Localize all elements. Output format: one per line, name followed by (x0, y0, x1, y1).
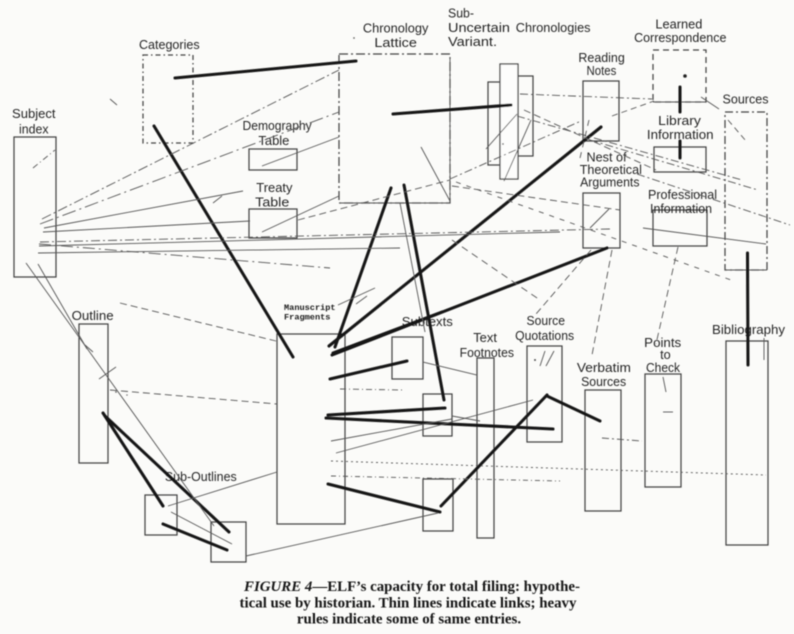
svg-text:Variant.: Variant. (448, 34, 497, 49)
svg-text:Treaty: Treaty (256, 180, 293, 195)
svg-text:Arguments: Arguments (580, 175, 640, 190)
svg-text:Quotations: Quotations (515, 328, 574, 343)
svg-text:Lattice: Lattice (374, 35, 417, 50)
svg-text:Check: Check (646, 360, 680, 375)
svg-text:Information: Information (650, 201, 712, 216)
svg-text:Library: Library (658, 113, 701, 128)
svg-text:Verbatim: Verbatim (577, 360, 631, 375)
svg-text:Manuscript: Manuscript (284, 303, 336, 313)
svg-text:Text: Text (473, 330, 497, 345)
svg-text:Table: Table (258, 133, 289, 148)
svg-text:Footnotes: Footnotes (460, 345, 515, 360)
svg-text:Categories: Categories (139, 37, 200, 52)
svg-text:Source: Source (527, 313, 566, 328)
svg-text:tical use by historian. Thin l: tical use by historian. Thin lines indic… (240, 596, 577, 612)
svg-text:Subject: Subject (12, 106, 56, 121)
svg-text:Notes: Notes (587, 63, 617, 78)
svg-text:Chronologies: Chronologies (516, 20, 591, 35)
svg-text:Sources: Sources (723, 92, 769, 107)
svg-text:Outline: Outline (72, 308, 114, 323)
svg-text:Table: Table (255, 195, 289, 210)
svg-text:Demography: Demography (243, 118, 313, 133)
svg-text:Correspondence: Correspondence (634, 30, 726, 45)
svg-text:FIGURE 4—ELF’s capacity for to: FIGURE 4—ELF’s capacity for total filing… (243, 579, 580, 595)
svg-text:rules indicate some of same en: rules indicate some of same entries. (297, 612, 521, 628)
svg-text:Fragments: Fragments (284, 313, 330, 323)
svg-text:Sub-: Sub- (448, 6, 474, 21)
svg-text:Uncertain: Uncertain (448, 20, 510, 35)
svg-text:Chronology: Chronology (363, 21, 429, 36)
svg-text:index: index (19, 122, 49, 137)
svg-text:Sources: Sources (581, 374, 626, 389)
